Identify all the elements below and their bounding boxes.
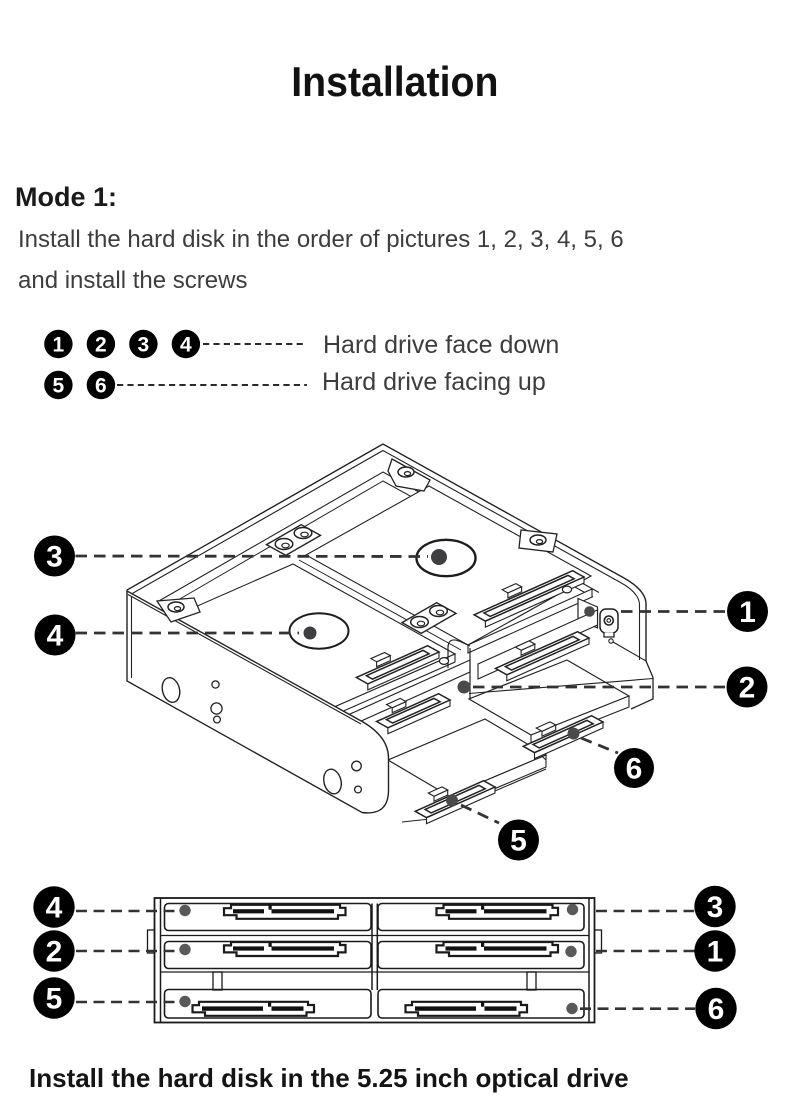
svg-text:3: 3 bbox=[138, 334, 150, 357]
svg-text:3: 3 bbox=[46, 541, 63, 574]
svg-text:2: 2 bbox=[46, 936, 63, 969]
svg-text:6: 6 bbox=[626, 753, 643, 786]
svg-text:6: 6 bbox=[708, 993, 725, 1026]
svg-text:2: 2 bbox=[95, 334, 107, 357]
svg-text:5: 5 bbox=[510, 825, 527, 858]
svg-text:5: 5 bbox=[46, 983, 63, 1016]
svg-text:4: 4 bbox=[180, 334, 192, 357]
svg-text:4: 4 bbox=[46, 892, 63, 925]
svg-text:3: 3 bbox=[707, 891, 724, 924]
svg-text:4: 4 bbox=[47, 620, 64, 653]
svg-text:1: 1 bbox=[739, 596, 756, 629]
svg-text:6: 6 bbox=[95, 375, 107, 398]
svg-text:2: 2 bbox=[739, 672, 756, 705]
svg-text:5: 5 bbox=[53, 375, 65, 398]
svg-text:1: 1 bbox=[53, 334, 65, 357]
svg-text:1: 1 bbox=[707, 936, 724, 969]
